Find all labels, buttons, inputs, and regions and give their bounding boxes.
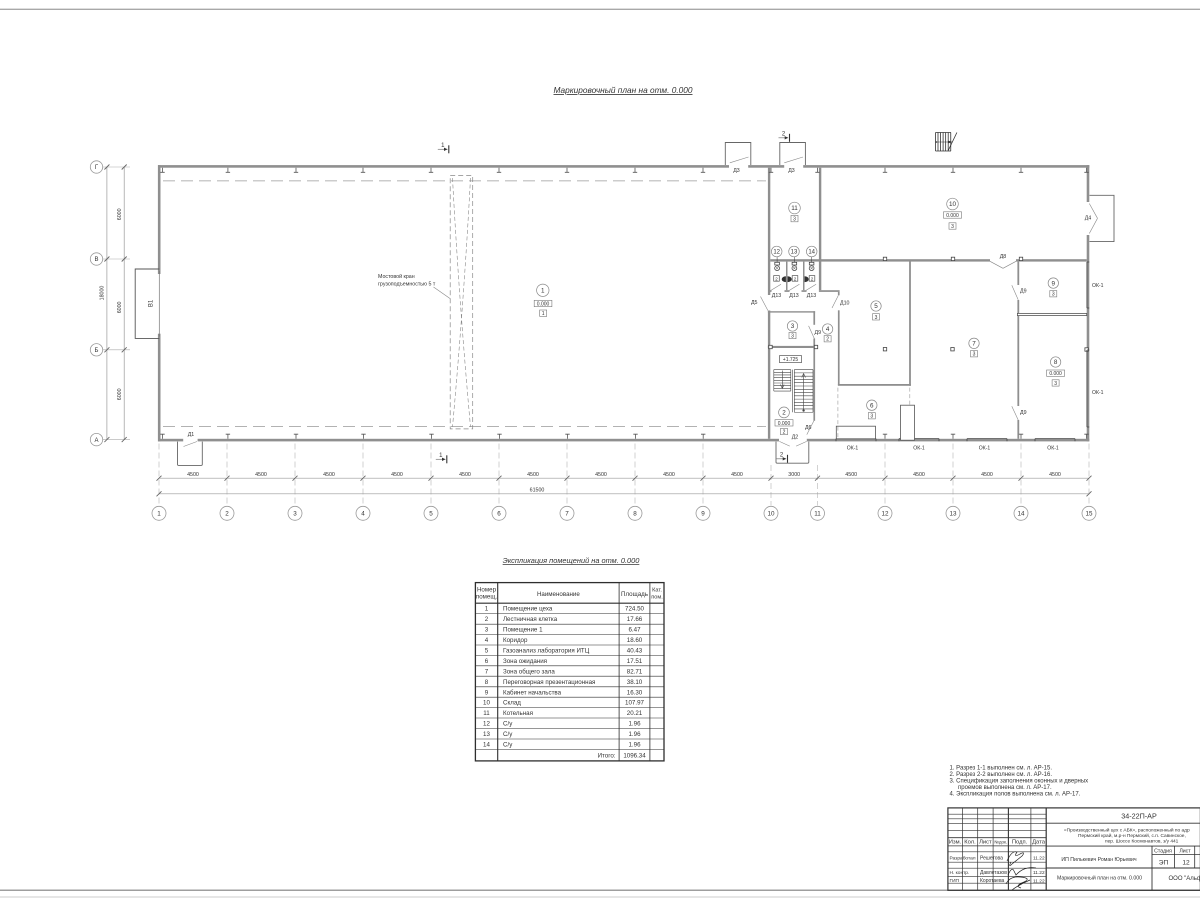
svg-text:Пермский край, м.р-н Пермский,: Пермский край, м.р-н Пермский, с.п. Сави… (1078, 832, 1186, 839)
svg-text:6: 6 (870, 402, 874, 409)
svg-text:11.22: 11.22 (1033, 870, 1045, 876)
svg-text:Площадь: Площадь (621, 591, 648, 598)
svg-text:Д3: Д3 (733, 168, 740, 174)
svg-text:Итого:: Итого: (598, 753, 616, 760)
svg-text:4500: 4500 (663, 472, 675, 478)
svg-text:16.30: 16.30 (627, 689, 643, 696)
svg-text:1.96: 1.96 (628, 731, 641, 738)
svg-text:ЭП: ЭП (1159, 859, 1169, 866)
svg-text:Лист: Лист (979, 840, 992, 846)
svg-text:2: 2 (782, 410, 786, 417)
svg-text:3: 3 (791, 333, 794, 339)
svg-text:А: А (94, 438, 98, 444)
svg-text:5: 5 (485, 648, 489, 655)
svg-text:0.000: 0.000 (1049, 371, 1062, 377)
svg-text:2. Разрез 2-2 выполнен см. л.: 2. Разрез 2-2 выполнен см. л. АР-16. (950, 772, 1053, 778)
svg-text:ГИП: ГИП (950, 878, 960, 884)
svg-text:1: 1 (542, 311, 545, 317)
svg-text:12: 12 (1182, 859, 1190, 866)
svg-text:4500: 4500 (391, 472, 403, 478)
svg-text:1096.34: 1096.34 (623, 753, 646, 760)
svg-text:Д13: Д13 (789, 293, 799, 299)
svg-text:8: 8 (633, 511, 637, 518)
svg-text:13: 13 (791, 250, 798, 256)
svg-text:38.10: 38.10 (627, 679, 643, 686)
svg-text:проемов выполнена см. л. АР-17: проемов выполнена см. л. АР-17. (958, 785, 1052, 791)
svg-text:Мостовой кран: Мостовой кран (378, 273, 415, 280)
svg-text:3: 3 (951, 224, 954, 230)
svg-text:4: 4 (485, 637, 489, 644)
svg-text:14: 14 (1017, 511, 1025, 518)
svg-text:15: 15 (1085, 511, 1093, 518)
svg-text:«Производственный цех с АБК»,: «Производственный цех с АБК», расположен… (1064, 826, 1190, 833)
svg-text:6: 6 (497, 511, 501, 518)
svg-text:ОК-1: ОК-1 (1092, 390, 1104, 396)
svg-text:ОК-1: ОК-1 (847, 445, 859, 451)
svg-text:грузоподъемностью 5 т: грузоподъемностью 5 т (378, 282, 436, 288)
svg-text:12: 12 (773, 250, 780, 256)
svg-text:14: 14 (483, 742, 490, 749)
svg-text:4500: 4500 (459, 472, 471, 478)
svg-text:4500: 4500 (1049, 472, 1061, 478)
svg-text:18000: 18000 (99, 286, 105, 301)
svg-text:7: 7 (485, 668, 489, 675)
svg-text:3: 3 (875, 315, 878, 321)
svg-text:ИП Пилькевич Роман Юрьевич: ИП Пилькевич Роман Юрьевич (1061, 857, 1137, 863)
svg-text:4500: 4500 (595, 472, 607, 478)
svg-text:6: 6 (485, 658, 489, 665)
svg-text:1: 1 (485, 606, 489, 613)
svg-text:7: 7 (972, 341, 976, 348)
svg-text:5: 5 (874, 303, 878, 310)
svg-text:ОК-1: ОК-1 (1047, 445, 1059, 451)
svg-text:12: 12 (483, 721, 490, 728)
svg-text:Номер: Номер (477, 587, 497, 594)
svg-text:4: 4 (361, 511, 365, 518)
svg-text:Д1: Д1 (188, 432, 195, 438)
svg-text:Лист: Лист (1179, 849, 1191, 855)
svg-text:11: 11 (791, 205, 798, 212)
svg-text:Зона ожидания: Зона ожидания (503, 658, 547, 665)
svg-text:ОК-1: ОК-1 (1092, 283, 1104, 289)
svg-text:2: 2 (485, 616, 489, 623)
svg-text:Коридор: Коридор (503, 637, 528, 644)
svg-text:Б: Б (95, 348, 99, 354)
svg-text:Переговорная презентационная: Переговорная презентационная (503, 679, 595, 686)
svg-text:4500: 4500 (255, 472, 267, 478)
svg-text:2: 2 (225, 511, 229, 518)
svg-text:Д2: Д2 (792, 435, 799, 441)
svg-text:Д3: Д3 (788, 168, 795, 174)
svg-text:Кат.: Кат. (652, 588, 662, 594)
svg-text:Газоанализ лаборатория ИТЦ: Газоанализ лаборатория ИТЦ (503, 648, 590, 655)
svg-text:40.43: 40.43 (627, 648, 643, 655)
svg-text:3: 3 (793, 217, 796, 223)
svg-text:1: 1 (541, 288, 545, 295)
svg-text:61500: 61500 (530, 488, 545, 494)
svg-text:Помещение 1: Помещение 1 (503, 627, 543, 634)
svg-text:Кол.: Кол. (964, 840, 976, 846)
svg-text:82.71: 82.71 (627, 668, 643, 675)
svg-text:4. Экспликация полов выполнена: 4. Экспликация полов выполнена см. л. АР… (950, 792, 1081, 798)
svg-text:20.21: 20.21 (627, 710, 643, 717)
svg-text:0.000: 0.000 (778, 421, 791, 427)
svg-text:3: 3 (973, 352, 976, 358)
svg-text:В: В (94, 257, 98, 263)
svg-text:Д5: Д5 (751, 300, 758, 306)
svg-text:5: 5 (429, 511, 433, 518)
svg-text:Давлетазов: Давлетазов (980, 870, 1007, 876)
svg-text:ОК-1: ОК-1 (979, 445, 991, 451)
svg-text:Решетова: Решетова (980, 855, 1003, 861)
svg-text:8: 8 (485, 679, 489, 686)
svg-text:3: 3 (870, 414, 873, 420)
svg-text:4500: 4500 (187, 472, 199, 478)
svg-text:9: 9 (485, 689, 489, 696)
svg-text:Наименование: Наименование (537, 591, 580, 598)
svg-text:9: 9 (1052, 280, 1056, 287)
svg-text:4500: 4500 (527, 472, 539, 478)
svg-text:Зона общего зала: Зона общего зала (503, 668, 555, 675)
svg-text:Н. контр.: Н. контр. (950, 870, 970, 876)
svg-text:6.47: 6.47 (628, 627, 641, 634)
svg-text:3000: 3000 (788, 472, 800, 478)
svg-text:8: 8 (1054, 359, 1058, 366)
svg-text:3: 3 (293, 511, 297, 518)
svg-text:13: 13 (949, 511, 957, 518)
svg-text:Коротаева: Коротаева (980, 878, 1005, 884)
svg-text:11.22: 11.22 (1033, 855, 1045, 861)
svg-text:Д4: Д4 (1085, 216, 1092, 222)
svg-text:724.50: 724.50 (625, 606, 644, 613)
svg-text:помещ.: помещ. (476, 594, 498, 601)
svg-text:3: 3 (791, 323, 795, 330)
svg-text:14: 14 (808, 250, 815, 256)
svg-text:С/у: С/у (503, 731, 513, 738)
svg-text:Д6: Д6 (805, 425, 812, 431)
svg-text:4500: 4500 (913, 472, 925, 478)
svg-text:Дата: Дата (1032, 840, 1046, 846)
svg-text:4500: 4500 (731, 472, 743, 478)
svg-text:С/у: С/у (503, 742, 513, 749)
svg-text:Д10: Д10 (840, 300, 850, 306)
svg-text:6000: 6000 (117, 388, 123, 400)
svg-text:Маркировочный план на отм. 0.0: Маркировочный план на отм. 0.000 (1057, 875, 1142, 882)
svg-text:17.51: 17.51 (627, 658, 643, 665)
svg-text:18.60: 18.60 (627, 637, 643, 644)
svg-text:С/у: С/у (503, 721, 513, 728)
svg-text:Д9: Д9 (815, 330, 822, 336)
svg-text:4500: 4500 (981, 472, 993, 478)
svg-text:1.96: 1.96 (628, 721, 641, 728)
svg-text:4: 4 (826, 326, 830, 333)
svg-text:2: 2 (783, 429, 786, 435)
svg-text:4500: 4500 (323, 472, 335, 478)
svg-text:В1: В1 (149, 299, 155, 307)
svg-text:9: 9 (701, 511, 705, 518)
svg-text:Д9: Д9 (1020, 289, 1027, 295)
svg-text:2: 2 (826, 337, 829, 343)
svg-text:3: 3 (485, 627, 489, 634)
svg-text:7: 7 (565, 511, 569, 518)
svg-text:Помещение цеха: Помещение цеха (503, 606, 553, 613)
svg-text:ООО "Альф: ООО "Альф (1169, 876, 1200, 882)
svg-text:1.96: 1.96 (628, 742, 641, 749)
svg-text:3: 3 (1052, 292, 1055, 298)
svg-text:Изм.: Изм. (949, 840, 962, 846)
svg-text:17.66: 17.66 (627, 616, 643, 623)
svg-text:34-22П-АР: 34-22П-АР (1121, 812, 1157, 821)
svg-text:ОК-1: ОК-1 (913, 445, 925, 451)
svg-text:Кабинет начальства: Кабинет начальства (503, 689, 562, 696)
svg-text:пер. Шоссе Космонавтов, з/у 44: пер. Шоссе Космонавтов, з/у 441 (1105, 839, 1179, 845)
svg-text:Стадия: Стадия (1154, 849, 1172, 855)
svg-text:Котельная: Котельная (503, 710, 533, 717)
svg-text:10: 10 (483, 700, 490, 707)
svg-text:4500: 4500 (845, 472, 857, 478)
svg-text:№док.: №док. (994, 840, 1007, 845)
svg-text:+1.725: +1.725 (783, 357, 799, 363)
svg-text:Д13: Д13 (772, 293, 782, 299)
svg-text:10: 10 (767, 511, 775, 518)
svg-text:10: 10 (949, 201, 957, 208)
svg-text:11: 11 (814, 511, 821, 518)
svg-text:1. Разрез 1-1 выполнен см. л.: 1. Разрез 1-1 выполнен см. л. АР-15. (950, 766, 1053, 772)
svg-text:107.97: 107.97 (625, 700, 644, 707)
svg-text:13: 13 (483, 731, 490, 738)
svg-text:Маркировочный план на отм. 0.: Маркировочный план на отм. 0.000 (554, 85, 693, 95)
svg-text:11: 11 (483, 710, 490, 717)
svg-text:3. Спецификация заполнения око: 3. Спецификация заполнения оконных и две… (950, 779, 1089, 785)
svg-text:3: 3 (1054, 381, 1057, 387)
svg-text:11.22: 11.22 (1033, 878, 1045, 884)
svg-text:Лестничная клетка: Лестничная клетка (503, 616, 558, 623)
svg-text:12: 12 (881, 511, 889, 518)
svg-text:0.000: 0.000 (537, 301, 550, 307)
svg-text:Экспликация помещений на отм.: Экспликация помещений на отм. 0.000 (503, 556, 641, 565)
svg-text:6000: 6000 (117, 208, 123, 220)
svg-text:Д13: Д13 (807, 293, 817, 299)
svg-text:Склад: Склад (503, 700, 521, 707)
svg-text:Подп.: Подп. (1012, 840, 1028, 846)
svg-text:Д9: Д9 (1020, 410, 1027, 416)
svg-text:1: 1 (157, 511, 161, 518)
svg-text:0.000: 0.000 (946, 213, 959, 219)
svg-text:Д8: Д8 (1000, 254, 1007, 260)
svg-text:6000: 6000 (117, 301, 123, 313)
svg-text:пом.: пом. (651, 595, 663, 601)
svg-text:Разработал: Разработал (950, 855, 976, 861)
